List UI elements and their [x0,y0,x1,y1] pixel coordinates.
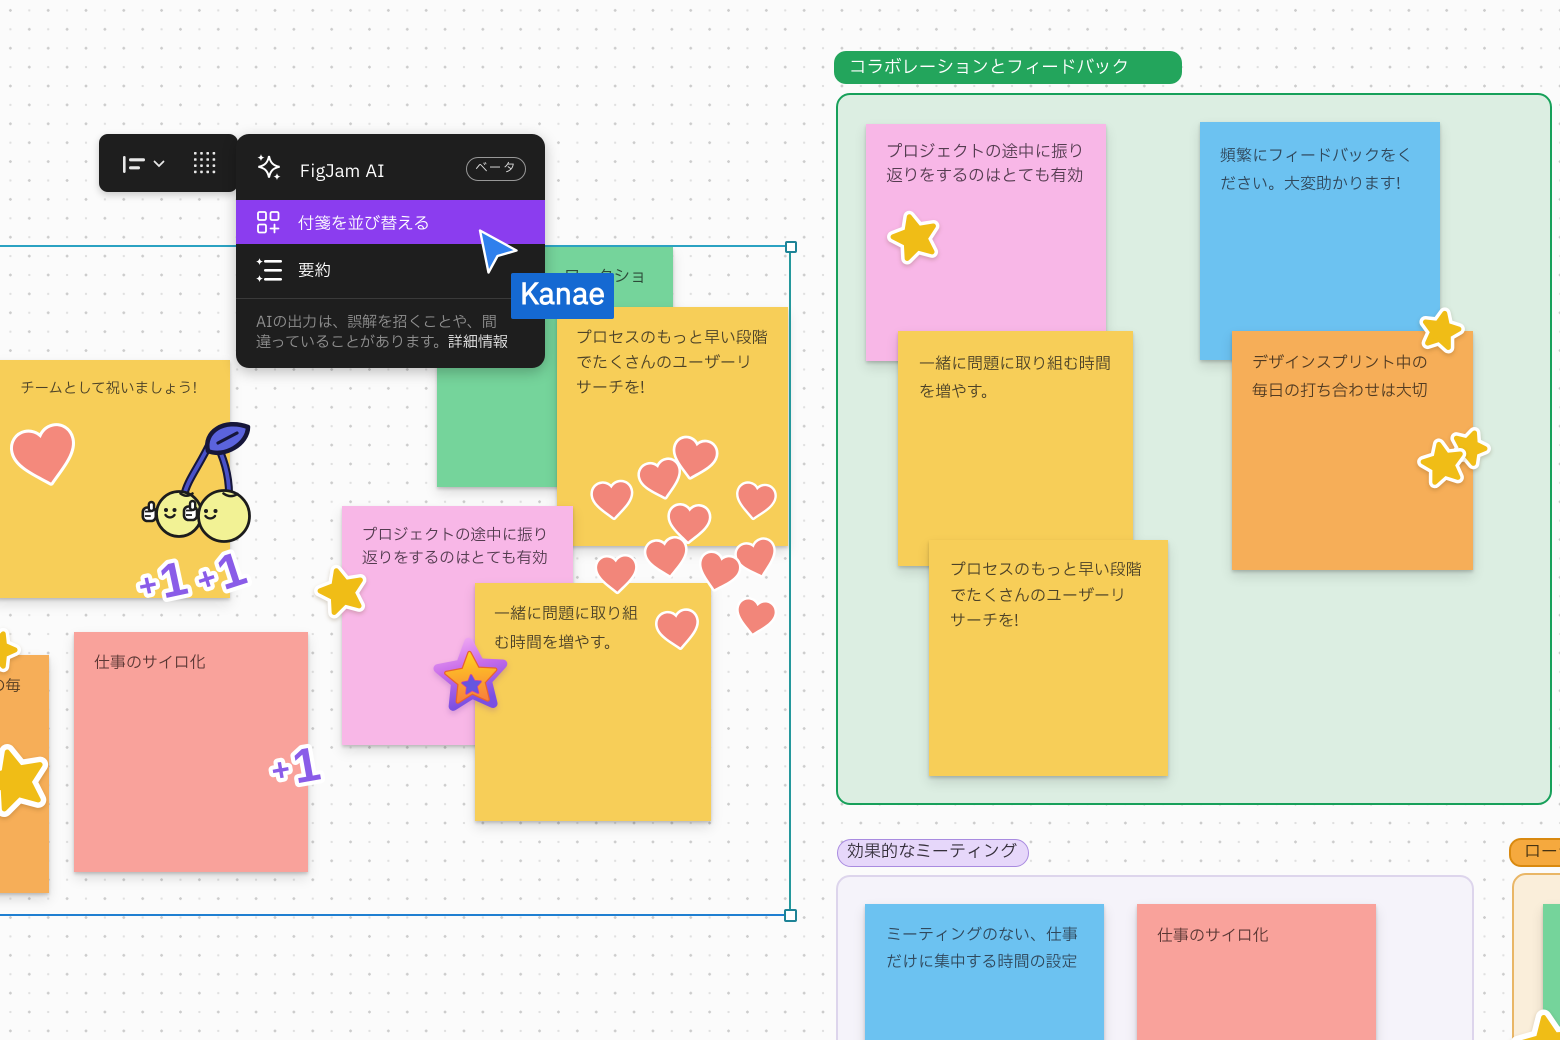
svg-text:+: + [269,751,293,789]
svg-text:1: 1 [155,552,192,609]
svg-text:+: + [135,566,160,604]
svg-text:1: 1 [289,738,324,795]
